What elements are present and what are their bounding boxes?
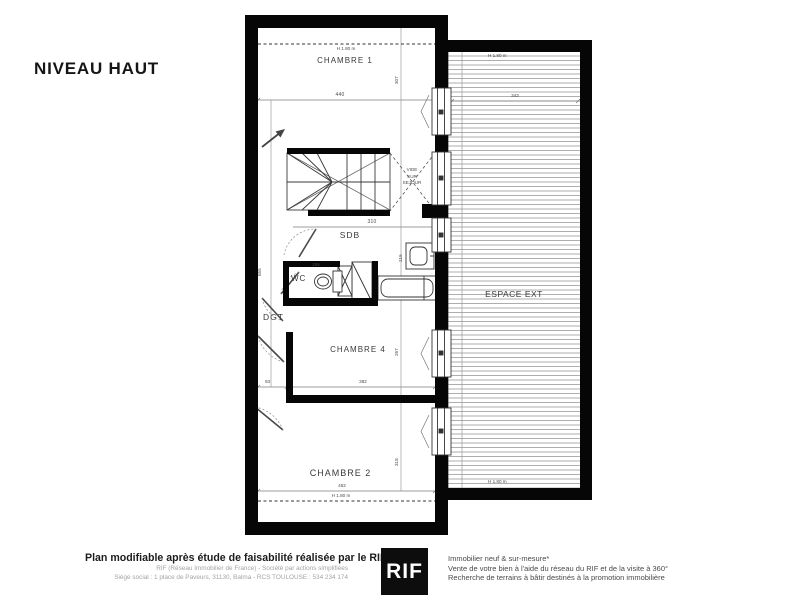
footer-service-1: Immobilier neuf & sur-mesure* [448,554,549,563]
window-icon [421,88,451,135]
room-label-dgt: DGT [263,312,284,322]
room-label-chambre2: CHAMBRE 2 [288,468,393,478]
dim-wc-width: 155 [312,262,320,267]
stair-direction-arrow [262,129,285,147]
dim-chambre1-depth: 307 [394,76,399,84]
dim-sdb-depth: 215 [398,254,403,262]
chambre2-height-note: H 1.80 m [316,493,366,498]
room-label-chambre4: CHAMBRE 4 [308,345,408,354]
window-icon [421,330,451,377]
room-label-chambre1: CHAMBRE 1 [295,56,395,65]
room-label-wc: WC [291,274,306,283]
espace-ext-height-note-top: H 1.80 m [488,53,507,58]
bathtub-icon [378,276,436,300]
washbasin-icon [406,243,434,269]
dim-chambre4-offset: 93 [265,379,270,384]
shower-icon [352,262,372,302]
dim-chambre1-width: 440 [315,92,365,98]
rif-logo-text: RIF [386,560,423,584]
footer-service-2: Vente de votre bien à l'aide du réseau d… [448,564,668,573]
dim-chambre2-depth: 318 [394,458,399,466]
footer-service-3: Recherche de terrains à bâtir destinés à… [448,573,665,582]
dim-espace-ext-width: 343 [500,93,530,98]
rif-logo: RIF [381,548,428,595]
floor-plan-drawing [0,0,800,600]
espace-ext-height-note-bottom: H 1.80 m [488,479,507,484]
staircase [287,153,390,210]
room-label-espace-ext: ESPACE EXT [455,289,573,299]
room-label-vide: VIDE SUR SEJOUR [389,167,435,187]
toilet-icon [315,271,343,292]
window-icon [432,218,451,252]
chambre1-height-note: H 1.80 m [316,46,376,51]
room-label-sdb: SDB [328,230,372,240]
footer-headline: Plan modifiable après étude de faisabili… [85,552,370,564]
footer-company-line: RIF (Réseau Immobilier de France) - Soci… [85,565,348,572]
dim-chambre4-width: 382 [343,379,383,384]
footer-address-line: Siège social : 1 place de Paveurs, 31130… [85,574,348,581]
dim-chambre2-width: 462 [322,483,362,488]
dim-sdb-width: 310 [352,219,392,225]
dim-overall-depth: 655 [257,268,262,276]
dim-chambre4-depth: 267 [394,348,399,356]
window-icon [421,408,451,455]
